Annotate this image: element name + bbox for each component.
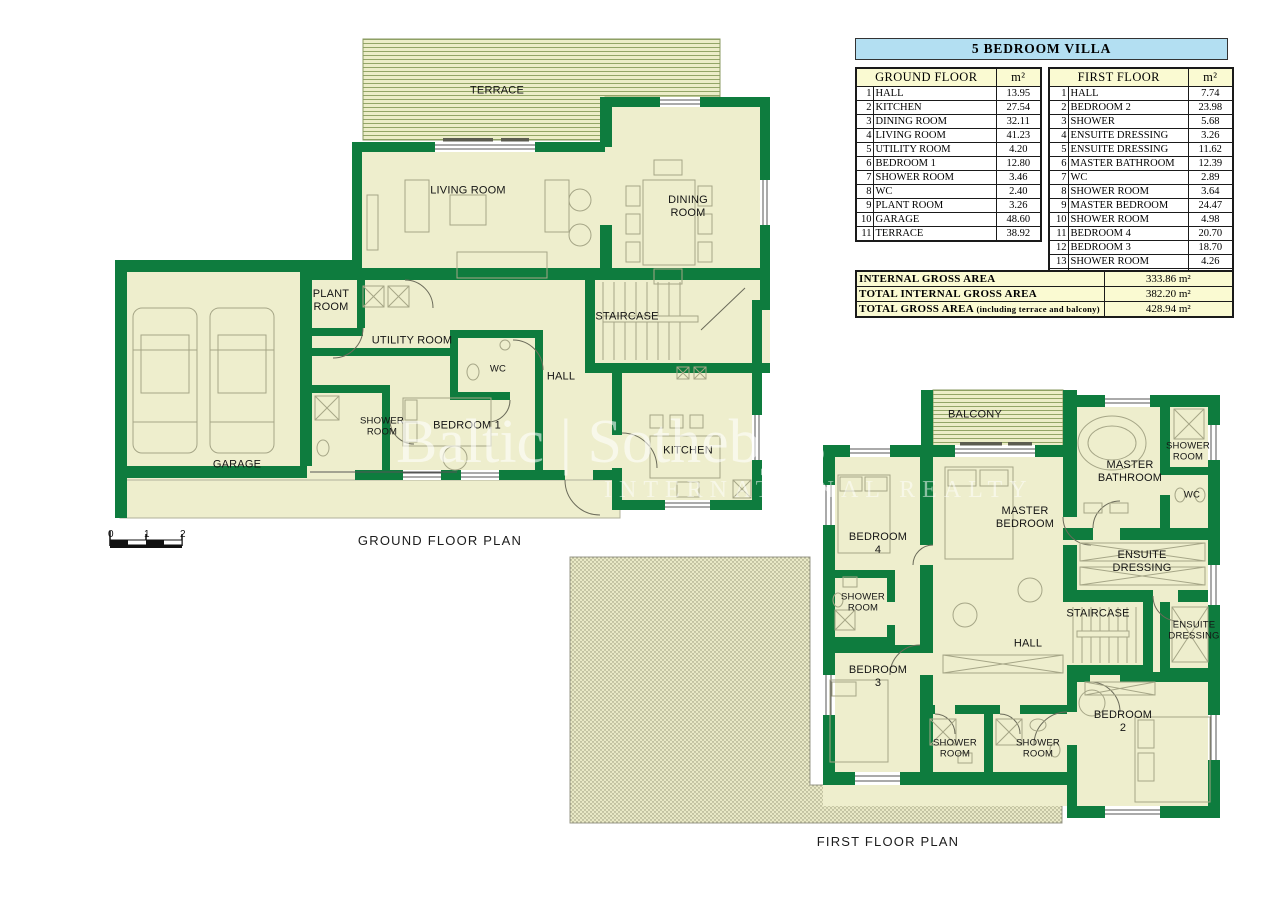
totals-row: TOTAL GROSS AREA (including terrace and … xyxy=(856,302,1233,318)
room-name: ENSUITE DRESSING xyxy=(1068,143,1188,157)
ground-floor-area-table: GROUND FLOOR m² 1HALL13.95 2KITCHEN27.54… xyxy=(855,67,1042,242)
table-row: 6BEDROOM 112.80 xyxy=(856,157,1041,171)
table-row: 10GARAGE48.60 xyxy=(856,213,1041,227)
room-name: BEDROOM 2 xyxy=(1068,101,1188,115)
room-label-utility: UTILITY ROOM xyxy=(372,334,452,347)
ground-floor-header: GROUND FLOOR xyxy=(856,68,996,87)
room-label-plant: PLANT ROOM xyxy=(313,288,349,314)
table-row: 2KITCHEN27.54 xyxy=(856,101,1041,115)
room-label-hall-first: HALL xyxy=(1014,637,1042,650)
room-area: 5.68 xyxy=(1188,115,1233,129)
room-label-balcony: BALCONY xyxy=(948,408,1002,421)
room-label-bedroom2: BEDROOM 2 xyxy=(1094,709,1152,735)
table-row: 11TERRACE38.92 xyxy=(856,227,1041,242)
room-label-shower-b2: SHOWER ROOM xyxy=(1016,738,1060,761)
room-name: SHOWER ROOM xyxy=(1068,185,1188,199)
room-label-staircase-first: STAIRCASE xyxy=(1066,607,1129,620)
table-row: 1HALL7.74 xyxy=(1049,87,1233,101)
table-row: 2BEDROOM 223.98 xyxy=(1049,101,1233,115)
room-name: SHOWER ROOM xyxy=(1068,255,1188,269)
room-name: BEDROOM 1 xyxy=(873,157,996,171)
row-num: 5 xyxy=(1049,143,1068,157)
room-name: DINING ROOM xyxy=(873,115,996,129)
room-area: 2.89 xyxy=(1188,171,1233,185)
row-num: 12 xyxy=(1049,241,1068,255)
room-area: 24.47 xyxy=(1188,199,1233,213)
room-name: BEDROOM 3 xyxy=(1068,241,1188,255)
total-label-note: (including terrace and balcony) xyxy=(977,304,1100,314)
table-row: 7SHOWER ROOM3.46 xyxy=(856,171,1041,185)
room-name: GARAGE xyxy=(873,213,996,227)
table-row: 3DINING ROOM32.11 xyxy=(856,115,1041,129)
ground-floor-caption: GROUND FLOOR PLAN xyxy=(358,533,522,548)
room-area: 2.40 xyxy=(996,185,1041,199)
room-label-shower-top: SHOWER ROOM xyxy=(1166,441,1210,464)
first-floor-caption: FIRST FLOOR PLAN xyxy=(817,834,959,849)
row-num: 3 xyxy=(856,115,873,129)
scale-tick-0: 0 xyxy=(108,529,114,540)
scale-tick-1: 1 xyxy=(144,529,150,540)
row-num: 5 xyxy=(856,143,873,157)
room-area: 4.26 xyxy=(1188,255,1233,269)
room-label-shower-b1: SHOWER ROOM xyxy=(933,738,977,761)
row-num: 4 xyxy=(856,129,873,143)
row-num: 8 xyxy=(856,185,873,199)
row-num: 7 xyxy=(1049,171,1068,185)
room-label-dining: DINING ROOM xyxy=(668,194,708,220)
gross-area-totals-table: INTERNAL GROSS AREA 333.86 m² TOTAL INTE… xyxy=(855,270,1234,318)
room-label-living: LIVING ROOM xyxy=(430,184,506,197)
room-name: HALL xyxy=(1068,87,1188,101)
room-label-wc-ground: WC xyxy=(490,363,506,374)
totals-row: TOTAL INTERNAL GROSS AREA 382.20 m² xyxy=(856,287,1233,302)
row-num: 11 xyxy=(1049,227,1068,241)
table-row: 4LIVING ROOM41.23 xyxy=(856,129,1041,143)
row-num: 10 xyxy=(1049,213,1068,227)
room-area: 20.70 xyxy=(1188,227,1233,241)
table-row: 3SHOWER5.68 xyxy=(1049,115,1233,129)
room-area: 27.54 xyxy=(996,101,1041,115)
table-row: 6MASTER BATHROOM12.39 xyxy=(1049,157,1233,171)
table-row: 13SHOWER ROOM4.26 xyxy=(1049,255,1233,269)
room-label-shower-left: SHOWER ROOM xyxy=(841,592,885,615)
table-row: 8WC2.40 xyxy=(856,185,1041,199)
unit-header: m² xyxy=(996,68,1041,87)
room-name: ENSUITE DRESSING xyxy=(1068,129,1188,143)
room-area: 3.26 xyxy=(996,199,1041,213)
room-name: UTILITY ROOM xyxy=(873,143,996,157)
room-name: MASTER BATHROOM xyxy=(1068,157,1188,171)
row-num: 1 xyxy=(856,87,873,101)
room-name: MASTER BEDROOM xyxy=(1068,199,1188,213)
total-value: 428.94 m² xyxy=(1104,302,1233,318)
row-num: 2 xyxy=(1049,101,1068,115)
first-floor-header: FIRST FLOOR xyxy=(1049,68,1188,87)
row-num: 4 xyxy=(1049,129,1068,143)
room-label-staircase-ground: STAIRCASE xyxy=(595,310,658,323)
room-area: 12.80 xyxy=(996,157,1041,171)
room-area: 32.11 xyxy=(996,115,1041,129)
table-row: 9MASTER BEDROOM24.47 xyxy=(1049,199,1233,213)
total-label: TOTAL GROSS AREA (including terrace and … xyxy=(856,302,1104,318)
first-floor-area-table: FIRST FLOOR m² 1HALL7.74 2BEDROOM 223.98… xyxy=(1048,67,1234,284)
room-area: 7.74 xyxy=(1188,87,1233,101)
room-name: TERRACE xyxy=(873,227,996,242)
row-num: 13 xyxy=(1049,255,1068,269)
table-row: 5UTILITY ROOM4.20 xyxy=(856,143,1041,157)
row-num: 6 xyxy=(856,157,873,171)
room-area: 12.39 xyxy=(1188,157,1233,171)
room-label-terrace: TERRACE xyxy=(470,84,524,97)
room-label-ensuite-upper: ENSUITE DRESSING xyxy=(1112,549,1171,575)
room-label-wc-first: WC xyxy=(1184,489,1200,500)
table-row: 12BEDROOM 318.70 xyxy=(1049,241,1233,255)
row-num: 10 xyxy=(856,213,873,227)
room-label-garage: GARAGE xyxy=(213,458,261,471)
total-label-text: INTERNAL GROSS AREA xyxy=(859,273,996,285)
table-header-row: FIRST FLOOR m² xyxy=(1049,68,1233,87)
total-label: INTERNAL GROSS AREA xyxy=(856,271,1104,287)
table-header-row: GROUND FLOOR m² xyxy=(856,68,1041,87)
scale-tick-2: 2 xyxy=(180,529,186,540)
total-label: TOTAL INTERNAL GROSS AREA xyxy=(856,287,1104,302)
row-num: 2 xyxy=(856,101,873,115)
room-name: HALL xyxy=(873,87,996,101)
room-area: 3.26 xyxy=(1188,129,1233,143)
table-row: 5ENSUITE DRESSING11.62 xyxy=(1049,143,1233,157)
room-name: LIVING ROOM xyxy=(873,129,996,143)
table-row: 11BEDROOM 420.70 xyxy=(1049,227,1233,241)
totals-row: INTERNAL GROSS AREA 333.86 m² xyxy=(856,271,1233,287)
room-name: SHOWER ROOM xyxy=(873,171,996,185)
room-area: 13.95 xyxy=(996,87,1041,101)
room-area: 48.60 xyxy=(996,213,1041,227)
scale-bar: 0 1 2 xyxy=(100,526,200,556)
room-area: 18.70 xyxy=(1188,241,1233,255)
room-label-bedroom4: BEDROOM 4 xyxy=(849,531,907,557)
row-num: 6 xyxy=(1049,157,1068,171)
row-num: 1 xyxy=(1049,87,1068,101)
room-area: 4.98 xyxy=(1188,213,1233,227)
room-name: KITCHEN xyxy=(873,101,996,115)
unit-header: m² xyxy=(1188,68,1233,87)
floorplan-sheet: TERRACE LIVING ROOM DINING ROOM PLANT RO… xyxy=(0,0,1285,900)
room-label-hall-ground: HALL xyxy=(547,370,575,383)
row-num: 9 xyxy=(856,199,873,213)
total-value: 382.20 m² xyxy=(1104,287,1233,302)
row-num: 11 xyxy=(856,227,873,242)
room-area: 23.98 xyxy=(1188,101,1233,115)
room-label-kitchen: KITCHEN xyxy=(663,444,713,457)
row-num: 7 xyxy=(856,171,873,185)
total-value: 333.86 m² xyxy=(1104,271,1233,287)
room-name: BEDROOM 4 xyxy=(1068,227,1188,241)
room-area: 11.62 xyxy=(1188,143,1233,157)
table-row: 7WC2.89 xyxy=(1049,171,1233,185)
total-label-text: TOTAL GROSS AREA xyxy=(859,303,973,315)
table-row: 4ENSUITE DRESSING3.26 xyxy=(1049,129,1233,143)
room-label-master-bedroom: MASTER BEDROOM xyxy=(996,505,1054,531)
room-name: SHOWER ROOM xyxy=(1068,213,1188,227)
room-area: 3.64 xyxy=(1188,185,1233,199)
room-name: PLANT ROOM xyxy=(873,199,996,213)
table-row: 8SHOWER ROOM3.64 xyxy=(1049,185,1233,199)
room-area: 41.23 xyxy=(996,129,1041,143)
room-name: SHOWER xyxy=(1068,115,1188,129)
room-name: WC xyxy=(873,185,996,199)
room-label-shower-ground: SHOWER ROOM xyxy=(360,416,404,439)
room-name: WC xyxy=(1068,171,1188,185)
row-num: 8 xyxy=(1049,185,1068,199)
villa-title-bar: 5 BEDROOM VILLA xyxy=(855,38,1228,60)
row-num: 9 xyxy=(1049,199,1068,213)
room-label-bedroom3: BEDROOM 3 xyxy=(849,664,907,690)
row-num: 3 xyxy=(1049,115,1068,129)
room-area: 3.46 xyxy=(996,171,1041,185)
room-label-bedroom1: BEDROOM 1 xyxy=(433,419,501,432)
room-label-master-bathroom: MASTER BATHROOM xyxy=(1098,459,1162,485)
table-row: 9PLANT ROOM3.26 xyxy=(856,199,1041,213)
total-label-text: TOTAL INTERNAL GROSS AREA xyxy=(859,288,1037,300)
room-area: 38.92 xyxy=(996,227,1041,242)
table-row: 1HALL13.95 xyxy=(856,87,1041,101)
room-area: 4.20 xyxy=(996,143,1041,157)
room-label-ensuite-lower: ENSUITE DRESSING xyxy=(1168,620,1219,643)
table-row: 10SHOWER ROOM4.98 xyxy=(1049,213,1233,227)
